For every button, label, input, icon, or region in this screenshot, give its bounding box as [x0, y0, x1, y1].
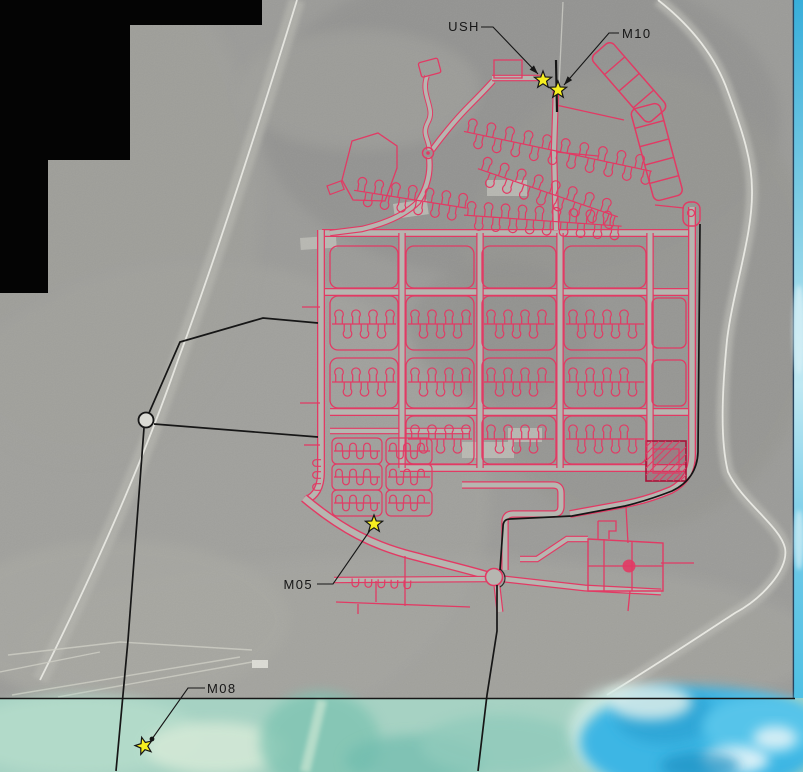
marker-label-m10: M10	[622, 26, 652, 41]
marker-label-m05: M05	[284, 577, 314, 592]
control-point-circle	[139, 413, 154, 428]
mask-step-rect	[0, 160, 48, 293]
roundabout	[486, 569, 503, 586]
marker-label-ush: USH	[448, 19, 480, 34]
marker-label-m08: M08	[207, 681, 237, 696]
ocean-edge-strip	[793, 0, 803, 700]
annotated-aerial-map: USH M10 M05 M08	[0, 0, 803, 772]
mask-step-rect	[0, 0, 262, 25]
site-map-figure: USH M10 M05 M08	[0, 0, 803, 772]
mask-step-rect	[0, 25, 130, 160]
